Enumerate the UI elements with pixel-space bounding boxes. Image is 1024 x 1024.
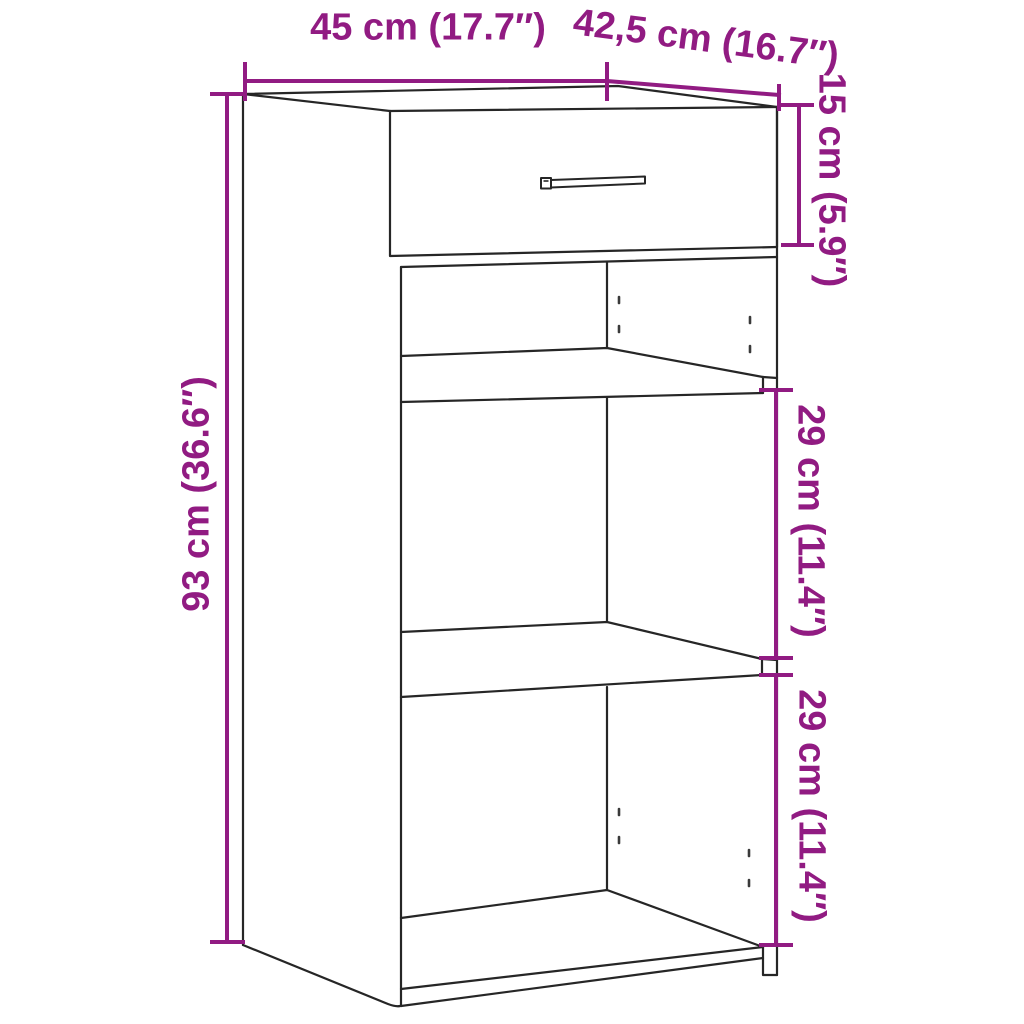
dimension-label-width: 45 cm (17.7″) (310, 7, 546, 50)
dimension-label-drawer-height: 15 cm (5.9″) (810, 73, 853, 288)
dimension-line-middle-compartment (761, 390, 791, 658)
shelf1-bottom-edge (401, 393, 763, 402)
shelf2-bottom-edge (401, 675, 762, 697)
shelf-1 (401, 348, 777, 402)
dimension-label-middle-compartment: 29 cm (11.4″) (789, 404, 832, 638)
dimension-lines (212, 64, 812, 945)
dimension-line-drawer-height (783, 105, 812, 245)
bottom-back-edges (401, 890, 763, 947)
product-dimension-diagram: 45 cm (17.7″) 42,5 cm (16.7″) 15 cm (5.9… (0, 0, 1024, 1024)
cabinet-outline (243, 86, 777, 1006)
dimension-label-bottom-compartment: 29 cm (11.4″) (790, 689, 833, 923)
cabinet-top-front-edge (390, 107, 777, 111)
dimension-line-bottom-compartment (761, 675, 791, 945)
left-panel-foot-edge (243, 945, 400, 1006)
cabinet-line-drawing (0, 0, 1024, 1024)
shelf1-end-top (763, 377, 777, 378)
dimension-label-total-height: 93 cm (36.6″) (176, 376, 219, 612)
bottom-board (401, 890, 777, 1006)
shelf-2 (401, 622, 777, 697)
cabinet-top-left-edge (243, 94, 390, 111)
handle-bar (551, 177, 645, 188)
right-foot (763, 947, 777, 975)
shelf2-top-edge (401, 622, 762, 659)
shelf1-top-edge (401, 348, 763, 377)
drawer-handle (541, 177, 645, 189)
shelf-pin-holes (619, 297, 750, 886)
handle-end-cap (541, 178, 551, 189)
opening-top-edge (401, 257, 777, 267)
